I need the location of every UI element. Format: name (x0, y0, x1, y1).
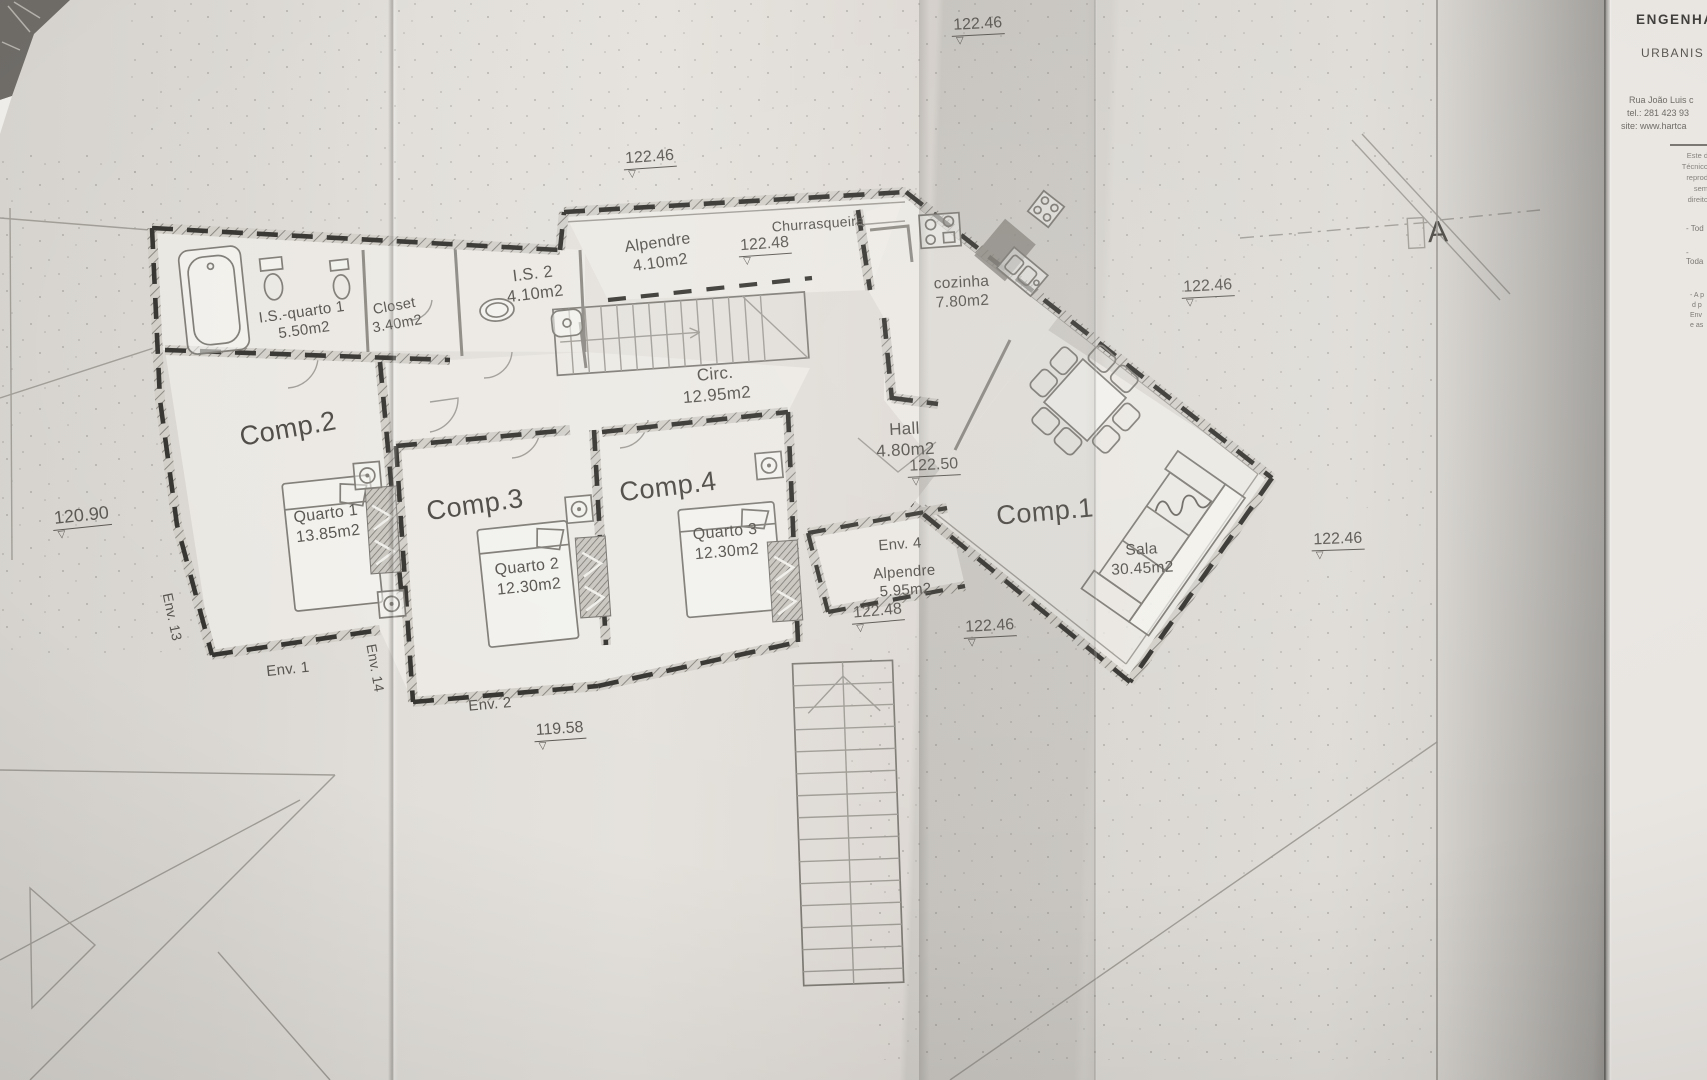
note-line: - Tod (1686, 224, 1704, 233)
fine-print-line: reprod (1668, 173, 1707, 182)
room-label-cozinha: cozinha7.80m2 (933, 273, 990, 314)
room-label-quarto2: Quarto 212.30m2 (494, 554, 562, 600)
elevation-marker: 122.46▽ (623, 147, 678, 180)
elevation-marker: 122.46▽ (1311, 530, 1365, 561)
room-label-circ: Circ.12.95m2 (680, 361, 752, 408)
window-label-env2: Env. 2 (468, 694, 513, 716)
room-label-env4: Env. 4 (878, 534, 922, 555)
title-block: ENGENHA URBANIS Rua João Luis c tel.: 28… (1610, 0, 1707, 1080)
wardrobe-quarto3-icon (767, 540, 803, 622)
elevation-marker: 122.46▽ (963, 616, 1017, 648)
room-label-alpendre-sul: Alpendre5.95m2 (873, 562, 938, 603)
divider (1670, 144, 1707, 146)
stove-icon (919, 213, 961, 249)
company-subtitle: URBANIS (1641, 46, 1704, 60)
photo-corner-background (0, 0, 70, 134)
fine-print-line: sem (1668, 184, 1707, 193)
fine-print-line: Técnico (1668, 162, 1707, 171)
elevation-marker: 122.48▽ (738, 234, 793, 267)
elevation-marker: 120.90▽ (51, 502, 113, 540)
company-name: ENGENHA (1636, 12, 1707, 27)
fine-print-line: direito (1668, 195, 1707, 204)
floor-plan-drawing (0, 0, 1707, 1080)
elevation-marker: 119.58▽ (533, 719, 587, 752)
company-website: site: www.hartca (1621, 121, 1687, 131)
elevation-marker: 122.48▽ (850, 600, 905, 634)
elevation-marker: 122.46▽ (1181, 276, 1235, 308)
company-phone: tel.: 281 423 93 (1627, 108, 1689, 118)
note-line: d p (1692, 302, 1702, 309)
shower-tray-icon (551, 309, 584, 338)
bathtub-icon (178, 245, 251, 355)
elevation-triangle-icon: ▽ (1316, 550, 1365, 561)
wardrobe-quarto2-icon (575, 536, 611, 618)
fine-print-line: Este d (1668, 151, 1707, 160)
room-label-sala: Sala30.45m2 (1110, 539, 1174, 580)
room-label-quarto1: Quarto 113.85m2 (293, 501, 362, 548)
room-label-quarto3: Quarto 312.30m2 (692, 520, 760, 565)
section-marker-a: A (1427, 214, 1449, 252)
note-line: e as (1690, 322, 1703, 329)
wardrobe-quarto1-icon (365, 486, 401, 574)
elevation-marker: 122.46▽ (951, 14, 1005, 46)
floor-plan-photo: Comp.2 Comp.3 Comp.4 Comp.1 I.S.-quarto … (0, 0, 1707, 1080)
note-line: - A p (1690, 292, 1704, 299)
room-label-hall: Hall4.80m2 (875, 418, 936, 462)
elevation-marker: 122.50▽ (907, 455, 961, 487)
company-address: Rua João Luis c (1629, 95, 1694, 105)
room-label-is2: I.S. 24.10m2 (503, 261, 564, 308)
note-line: - Toda (1686, 248, 1707, 266)
note-line: Env (1690, 312, 1702, 319)
